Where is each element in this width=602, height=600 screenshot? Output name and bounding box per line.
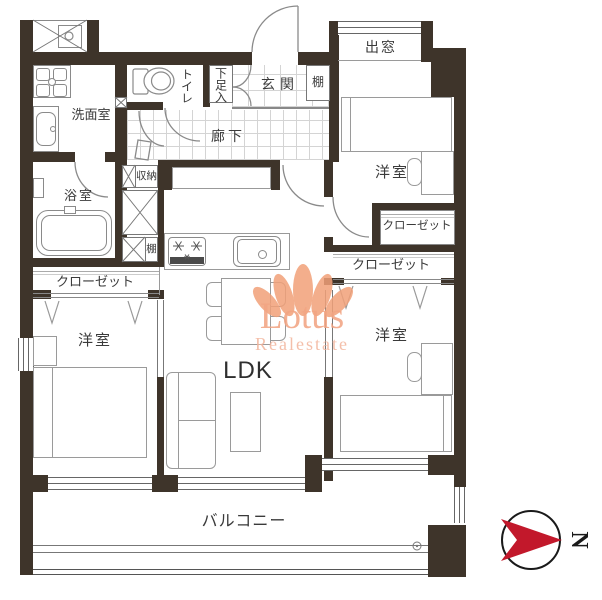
closet-west-track-1: [33, 293, 159, 294]
window-southeast-room-balcony: [322, 458, 428, 471]
washer-pad-4: [53, 84, 67, 97]
closet-west-track-2: [33, 297, 159, 298]
chair-southeast: [407, 352, 422, 382]
wall-closet-ne-top: [372, 203, 457, 210]
wall-bath-top-east: [105, 152, 120, 162]
wall-left: [20, 20, 33, 575]
pipe-shaft-box: [122, 190, 158, 235]
bath-counter: [33, 178, 44, 198]
closet-west-rod-line: [33, 271, 159, 272]
entrance-step-line: [232, 107, 329, 109]
bathtub-faucet-deck: [64, 206, 76, 214]
balcony-rail-line-4: [33, 574, 428, 575]
balcony-drain-icon: [413, 542, 421, 550]
wall-southwest-window-block-left: [33, 475, 48, 492]
closet-northeast-rod-2: [381, 217, 454, 218]
stove-grill-band: [170, 257, 204, 264]
wall-southeast-window-block-right: [428, 455, 454, 475]
tv-board: [230, 392, 261, 452]
washer-drain-icon: [48, 78, 56, 86]
label-closet-northeast: クローゼット: [378, 220, 456, 234]
label-shoe-cabinet: 下足入: [213, 63, 229, 107]
label-room-southeast: 洋室: [362, 327, 422, 344]
watermark-line1: Lotus: [240, 297, 364, 335]
bed-southwest: [33, 367, 147, 458]
closet-west-right-edge: [159, 267, 160, 295]
label-bay-window: 出窓: [351, 39, 411, 55]
bathtub-inner: [41, 215, 107, 251]
desk-northeast: [421, 151, 454, 195]
wall-balcony-step-block: [305, 455, 322, 492]
wall-kitchen-cabinet-cap-left: [163, 167, 172, 190]
label-room-southwest: 洋室: [65, 332, 125, 349]
compass-circle: [502, 511, 560, 569]
label-toilet: トイレ: [179, 64, 195, 108]
compass: [501, 511, 562, 569]
wall-entrance-right: [329, 52, 339, 162]
window-southwest-room-left: [18, 338, 34, 371]
label-washroom: 洗面室: [62, 106, 120, 122]
wall-ldk-west: [157, 377, 164, 481]
sliding-door-southwest-room: [157, 300, 164, 377]
kitchen-sink-basin: [237, 239, 277, 264]
entrance-door-arc: [252, 6, 298, 52]
label-room-northeast: 洋室: [362, 164, 422, 181]
label-column-shelf: 棚: [145, 241, 158, 258]
sofa-seat-divider: [179, 420, 215, 421]
floor-plan: 洗面室 トイレ 下足入 玄関 棚 出窓 廊下 収納 浴室 棚 クローゼット クロ…: [0, 0, 602, 600]
ldk-door-arc: [283, 165, 324, 206]
label-bathroom: 浴室: [49, 187, 109, 203]
closet-east-track-2: [333, 283, 454, 284]
washer-pad-3: [36, 84, 50, 97]
nightstand-southwest: [33, 336, 57, 366]
meter-box-fixture: [58, 25, 82, 48]
bed-southwest-pillow-line: [52, 368, 53, 457]
balcony-rail-line-2: [33, 552, 428, 553]
wall-southwest-window-block-center: [152, 475, 178, 492]
closet-northeast-rod-1: [381, 214, 454, 215]
bed-northeast: [341, 97, 452, 152]
label-entrance: 玄関: [245, 76, 315, 92]
label-storage: 収納: [135, 168, 158, 185]
balcony-side-panel: [454, 487, 466, 523]
wall-meterbox-right: [87, 20, 99, 52]
label-ldk: LDK: [210, 358, 286, 384]
window-southwest-room-balcony: [48, 477, 152, 490]
label-closet-east: クローゼット: [345, 256, 437, 272]
bed-southeast-pillow-line: [443, 396, 444, 451]
northeast-room-door-arc: [333, 197, 369, 237]
wall-kitchen-cabinet-cap-right: [271, 160, 280, 190]
wall-northeast-corner: [431, 48, 466, 97]
bed-northeast-pillow-line: [350, 98, 351, 151]
label-entrance-shelf: 棚: [306, 74, 330, 90]
balcony-rail-line-1: [33, 545, 428, 546]
hanger-icon-west-1: [45, 301, 59, 323]
hanger-icon-east-2: [413, 286, 427, 308]
label-corridor: 廊下: [198, 128, 258, 144]
bay-window-sill-line: [338, 60, 421, 61]
label-closet-west: クローゼット: [50, 273, 140, 289]
wall-right: [454, 97, 466, 487]
closet-east-track-1: [333, 279, 454, 280]
balcony-rail-line-3: [33, 569, 428, 570]
wall-ldk-right-upper: [324, 160, 333, 197]
wall-bath-top-west: [20, 152, 75, 162]
closet-east-rod-1: [333, 254, 454, 255]
kitchen-wall-cabinet: [172, 167, 271, 189]
watermark-line2: Realestate: [240, 334, 364, 354]
wall-right-bottom-block: [428, 525, 466, 577]
sink-drain-icon: [258, 250, 267, 259]
wall-closet-east-top: [324, 245, 457, 252]
wall-corridor-bottom: [158, 160, 280, 167]
label-balcony: バルコニー: [194, 512, 294, 532]
vanity-faucet-icon: [50, 126, 56, 132]
north-arrow-icon: [501, 519, 562, 561]
desk-southeast: [421, 343, 453, 395]
hanger-icon-west-2: [128, 301, 142, 323]
compass-north-label: N: [566, 527, 592, 553]
window-ldk-balcony: [178, 477, 305, 490]
bay-window-glazing: [338, 21, 421, 35]
bed-southeast: [340, 395, 452, 452]
